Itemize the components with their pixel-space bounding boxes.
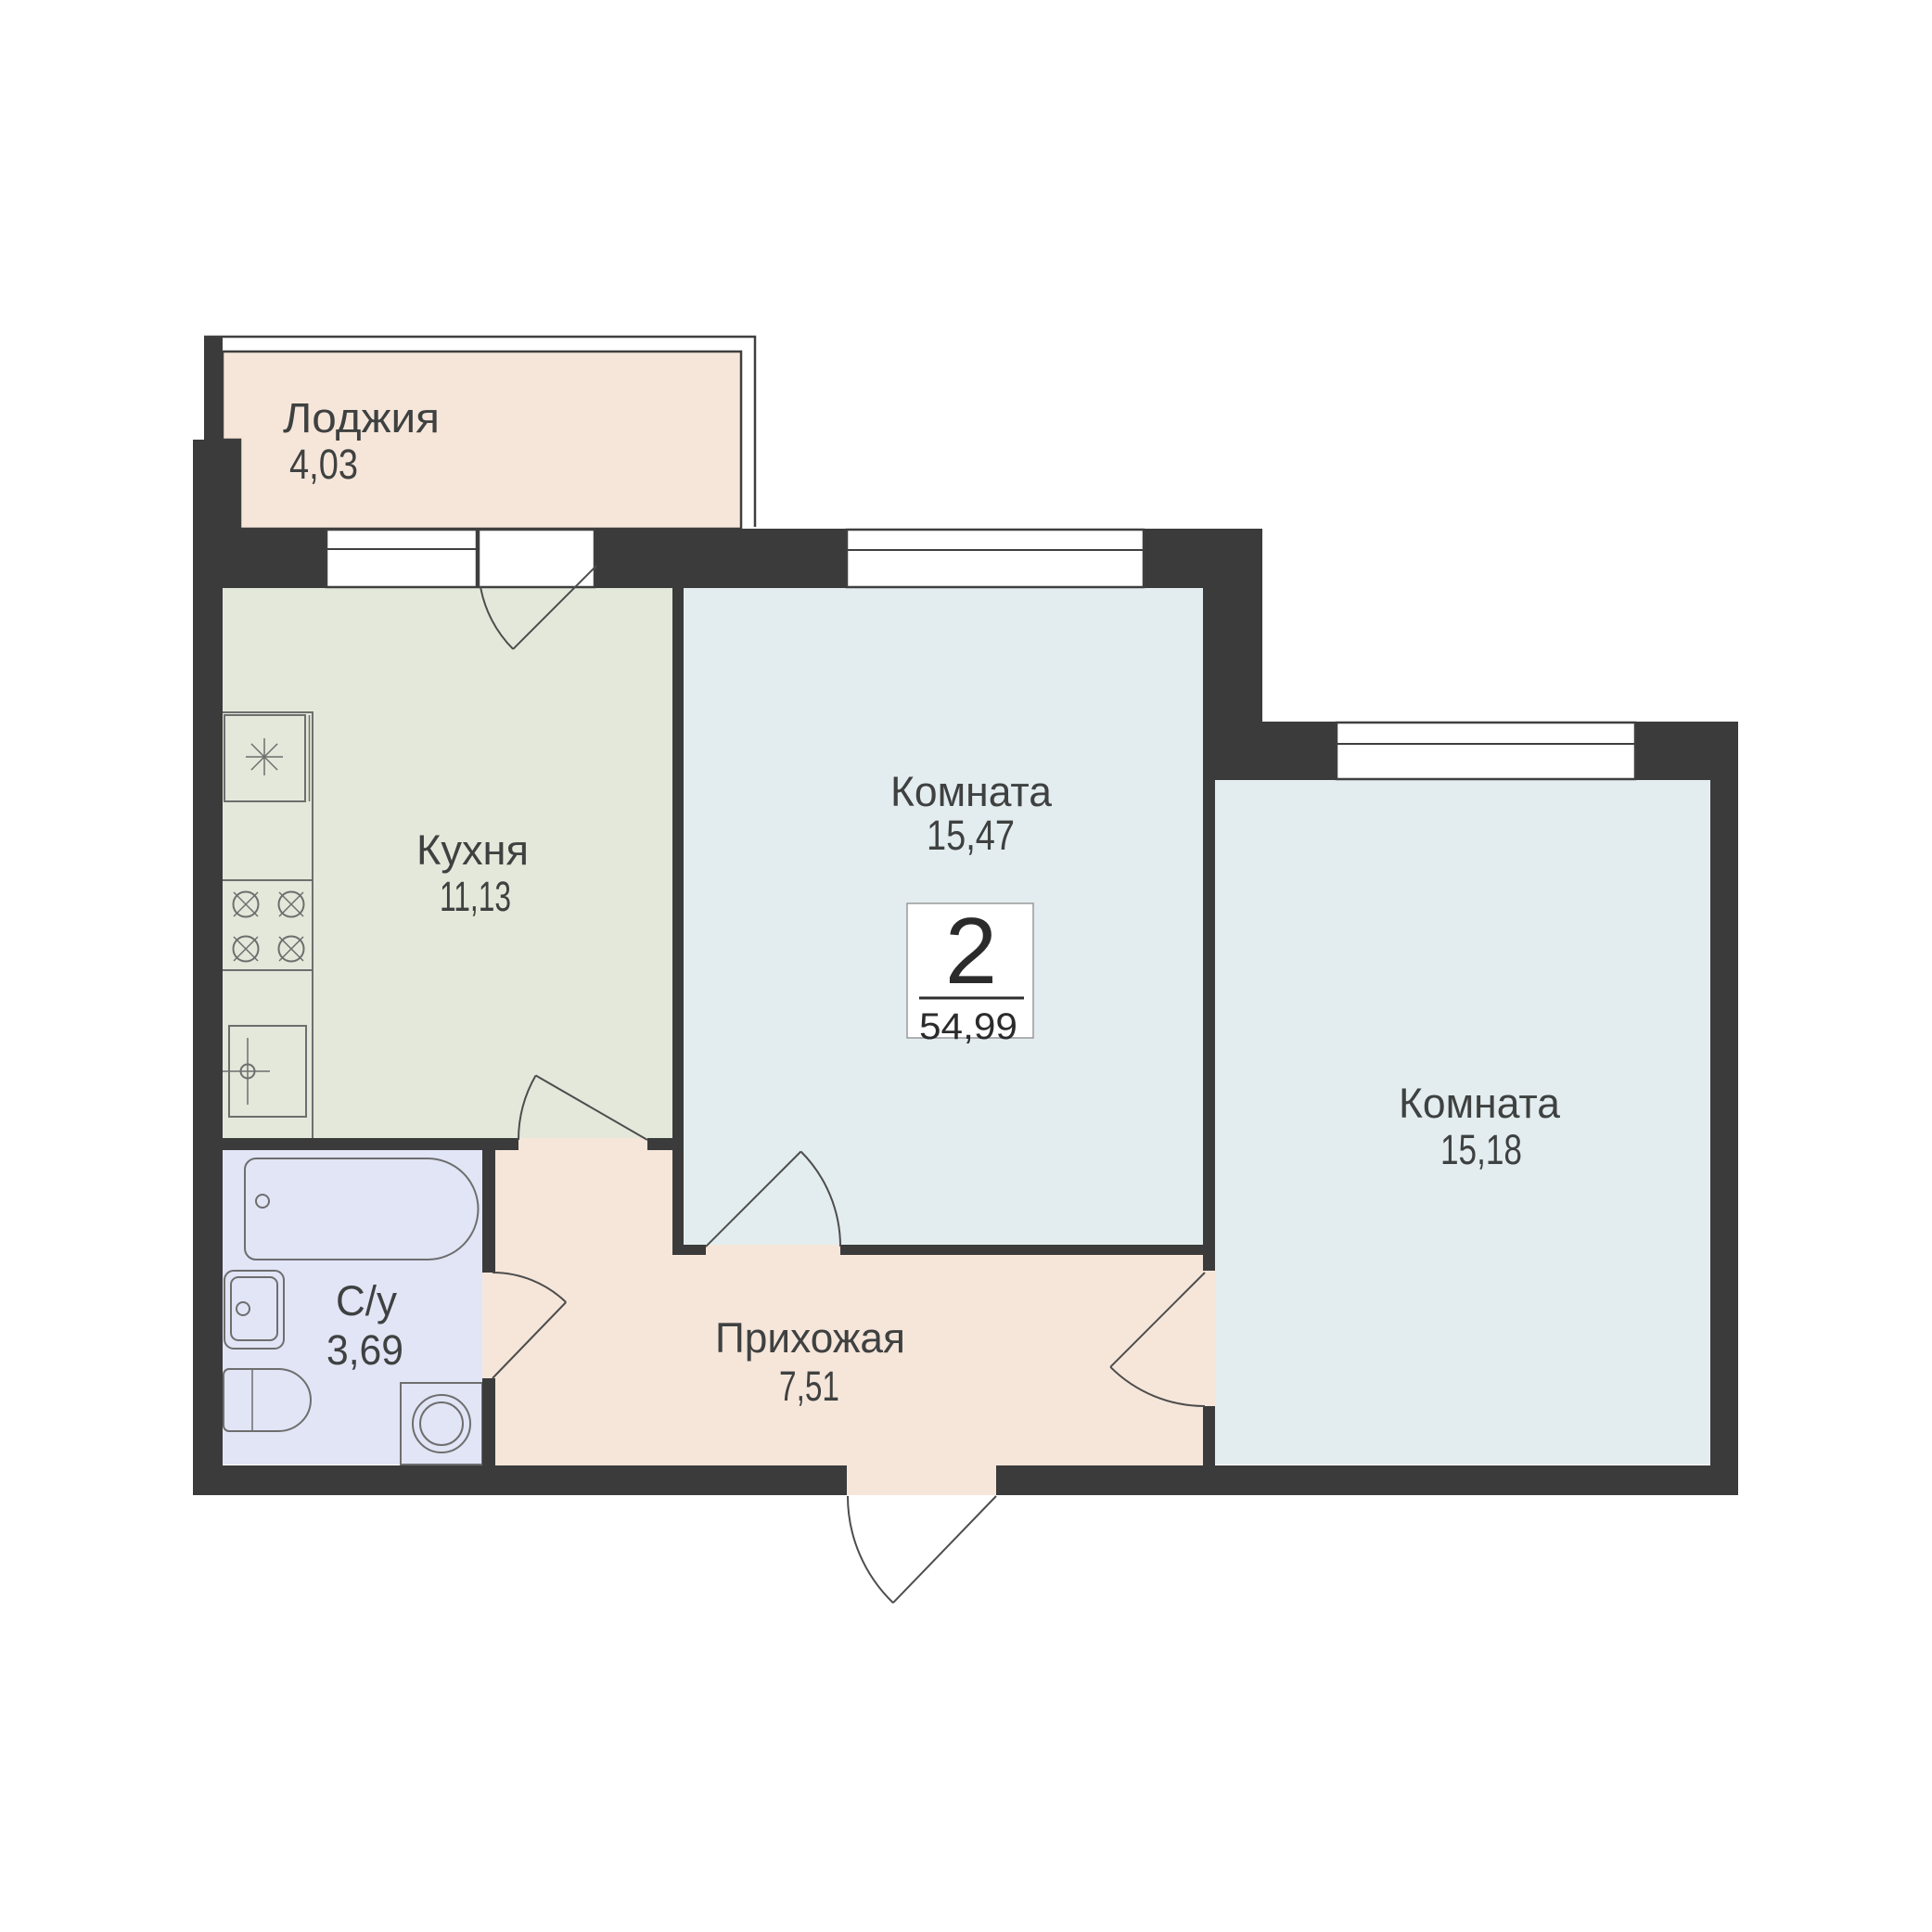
svg-text:15,18: 15,18	[1440, 1126, 1522, 1173]
svg-text:Прихожая: Прихожая	[715, 1314, 905, 1362]
svg-text:Комната: Комната	[890, 768, 1053, 815]
svg-text:54,99: 54,99	[919, 1006, 1017, 1047]
svg-text:7,51: 7,51	[779, 1363, 839, 1410]
svg-text:15,47: 15,47	[927, 812, 1015, 859]
svg-text:Кухня: Кухня	[416, 826, 529, 874]
svg-text:С/у: С/у	[336, 1277, 397, 1324]
svg-text:2: 2	[945, 900, 997, 1004]
svg-text:4,03: 4,03	[289, 441, 358, 488]
svg-text:11,13: 11,13	[440, 873, 511, 920]
svg-text:Лоджия: Лоджия	[283, 394, 440, 441]
svg-text:3,69: 3,69	[326, 1326, 403, 1374]
svg-text:Комната: Комната	[1399, 1080, 1561, 1127]
